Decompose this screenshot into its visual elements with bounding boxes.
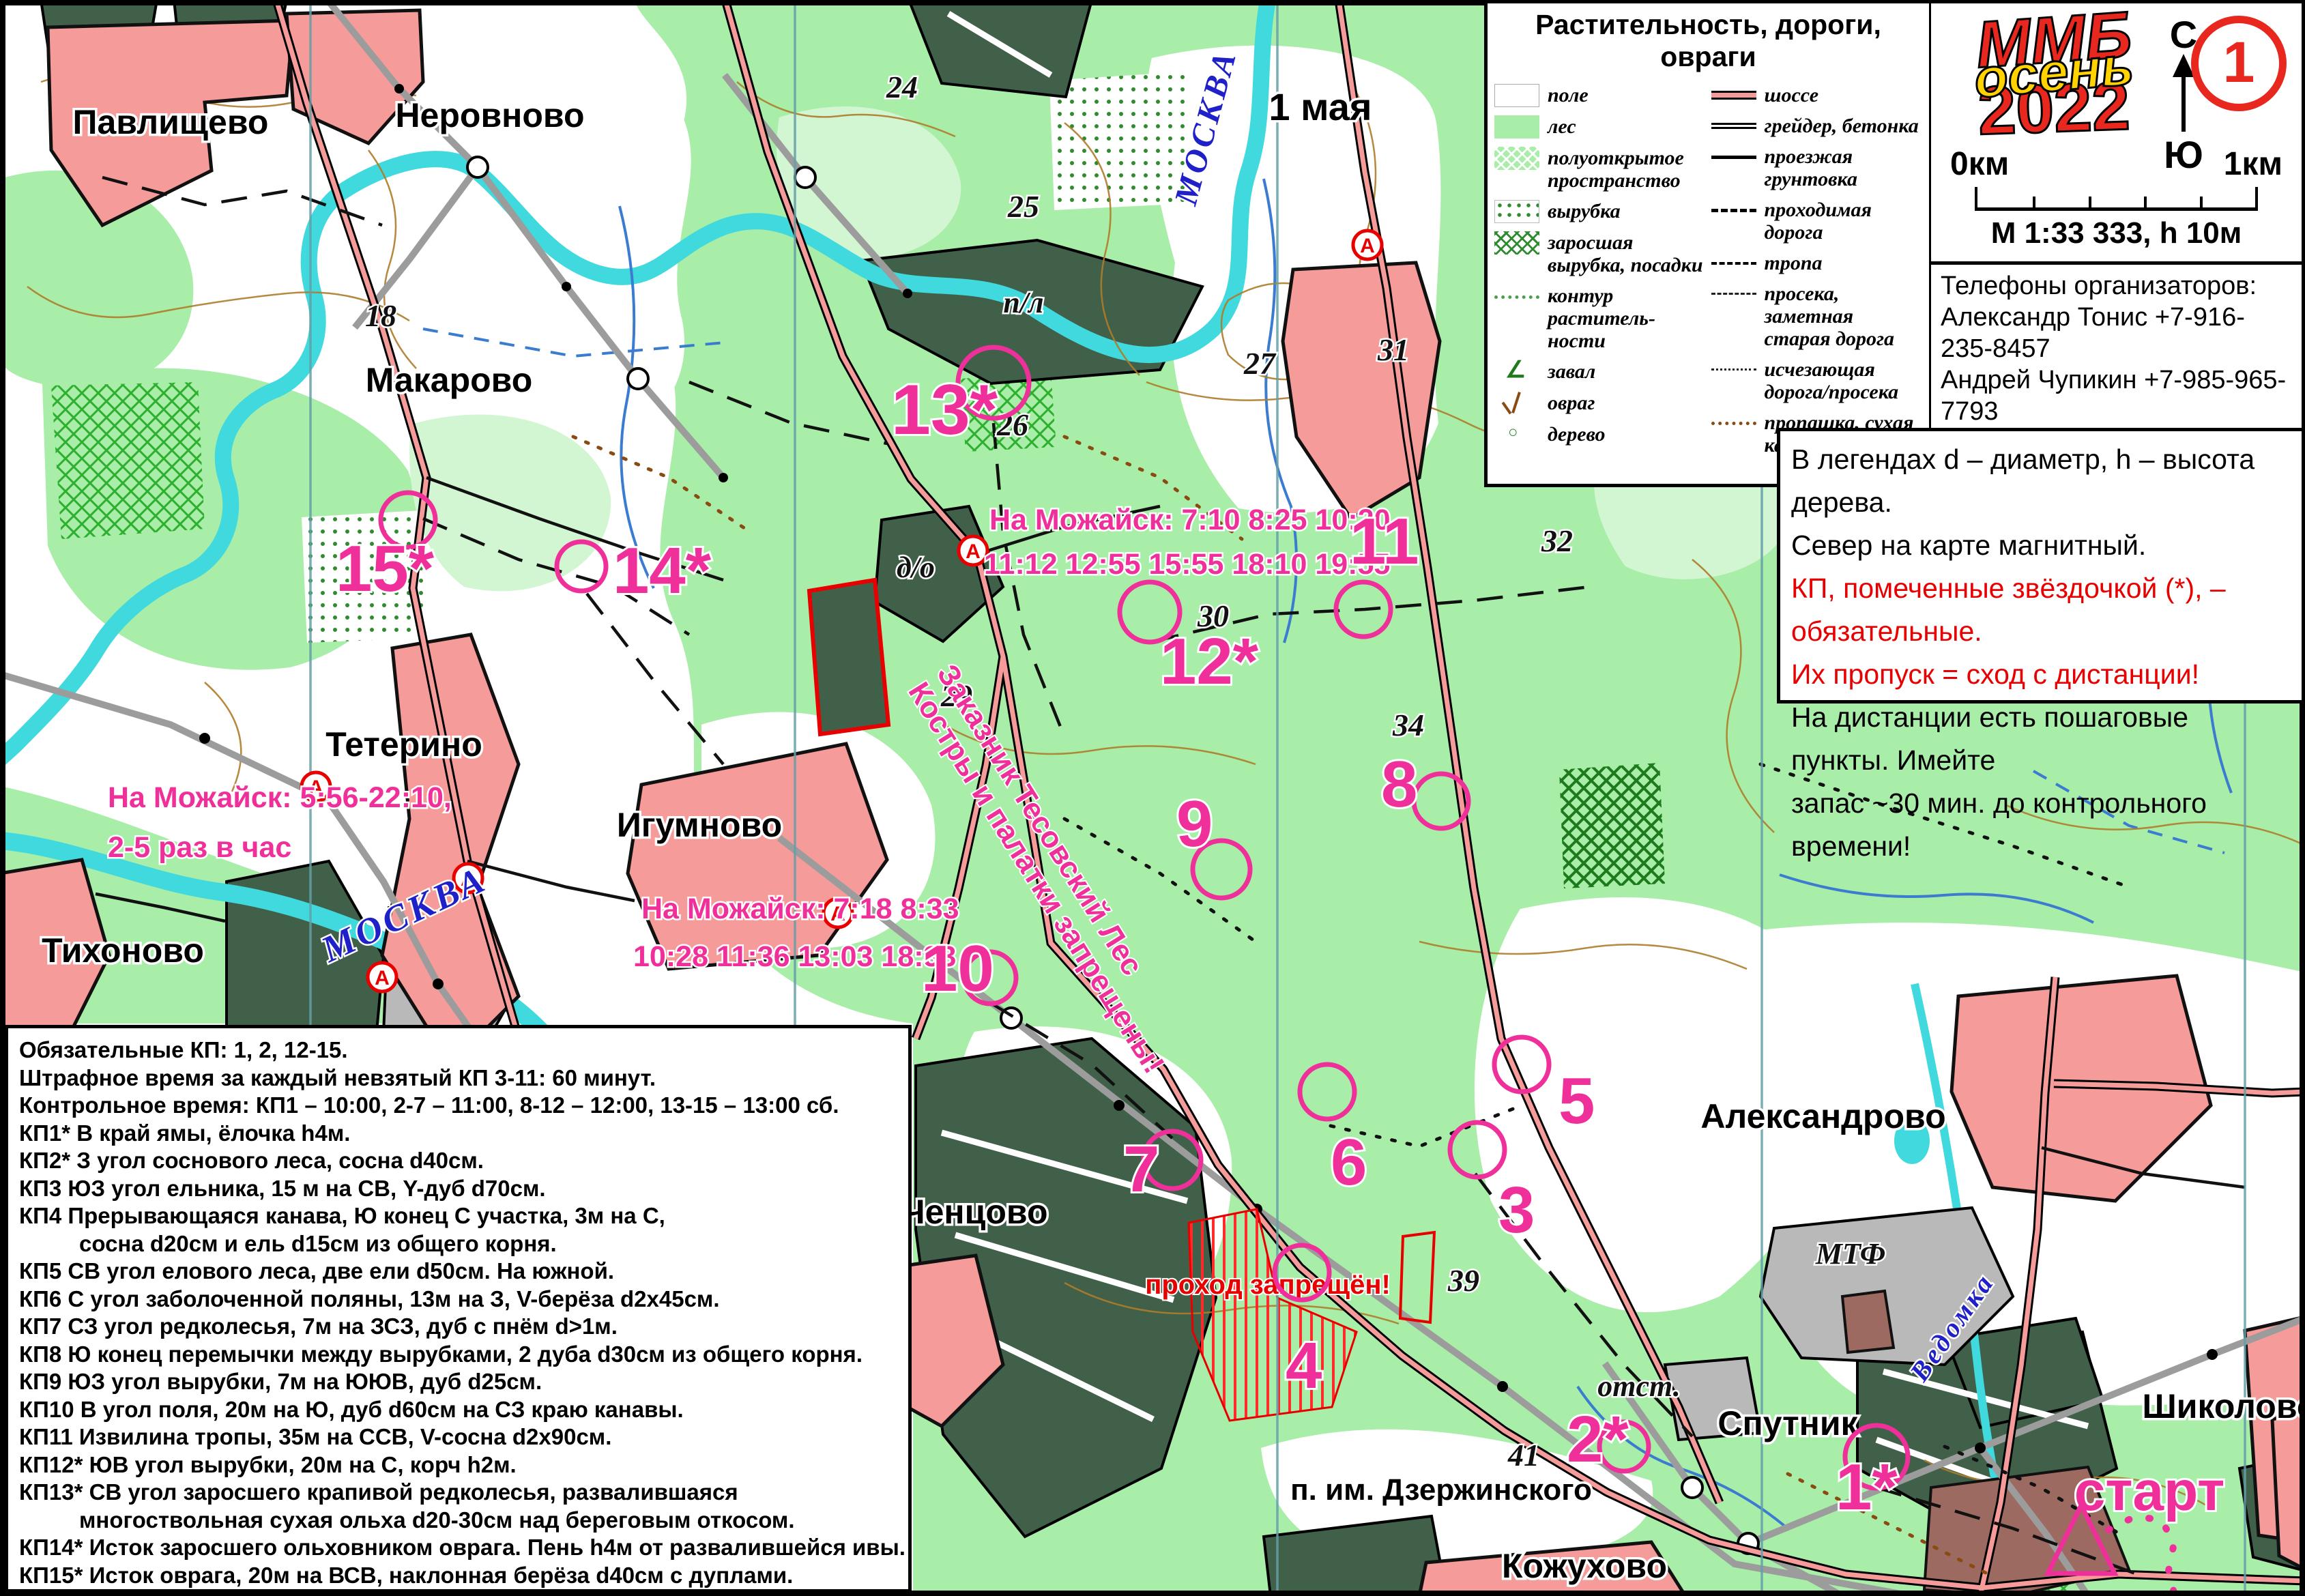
control-description-line: КП1* В край ямы, ёлочка h4м. xyxy=(19,1120,897,1148)
scale-caption: М 1:33 333, h 10м xyxy=(1950,216,2282,250)
legend-item: проезжая грунтовка xyxy=(1711,145,1923,190)
map-label-transit: 10:28 11:36 13:03 18:33 xyxy=(633,940,956,973)
map-label-num: 32 xyxy=(1541,523,1573,558)
legend-title: Растительность, дороги, овраги xyxy=(1494,9,1922,73)
notes-line: Их пропуск = сход с дистанции! xyxy=(1791,653,2291,696)
legend-item-label: контур раститель- ности xyxy=(1548,285,1706,352)
control-description-line: КП15* Исток оврага, 20м на ВСВ, наклонна… xyxy=(19,1562,897,1590)
control-description-line: КП7 СЗ угол редколесья, 7м на ЗСЗ, дуб с… xyxy=(19,1313,897,1341)
map-label-place: Неровново xyxy=(395,96,584,134)
legend-item: вырубка xyxy=(1494,200,1706,223)
legend-item: заросшая вырубка, посадки xyxy=(1494,231,1706,276)
map-label-place: Макарово xyxy=(366,361,533,399)
notes-line: КП, помеченные звёздочкой (*), – обязате… xyxy=(1791,567,2291,653)
event-logo: ММБ осень 2022 xyxy=(1952,10,2156,140)
map-label-transit: На Можайск: 7:18 8:33 xyxy=(641,893,959,925)
map-label-transit: 11:12 12:55 15:55 18:10 19:55 xyxy=(984,548,1390,581)
checkpoint-label: 5 xyxy=(1559,1064,1595,1137)
notes-line: На дистанции есть пошаговые пункты. Имей… xyxy=(1791,696,2291,782)
legend-swatch-icon xyxy=(1494,115,1539,139)
control-description-line: КП4 Прерывающаяся канава, Ю конец С учас… xyxy=(19,1202,897,1230)
map-label-num: 39 xyxy=(1447,1263,1479,1298)
map-label-place: Шиколово xyxy=(2143,1387,2305,1425)
map-label-num: 31 xyxy=(1377,332,1409,367)
checkpoint-label: 7 xyxy=(1123,1133,1159,1206)
legend-item-label: овраг xyxy=(1548,392,1595,414)
legend-item: проходимая дорога xyxy=(1711,199,1923,244)
legend-item: грейдер, бетонка xyxy=(1711,115,1923,137)
legend-swatch-icon xyxy=(1711,262,1756,265)
legend-swatch-icon xyxy=(1711,156,1756,159)
legend-item: поле xyxy=(1494,84,1706,107)
map-label-transit: 2-5 раз в час xyxy=(108,831,291,864)
map-label-place: п. им. Дзержинского xyxy=(1290,1473,1592,1507)
legend-item: контур раститель- ности xyxy=(1494,285,1706,352)
legend-swatch-icon xyxy=(1711,91,1756,100)
legend-swatch-icon xyxy=(1494,392,1539,415)
map-label-transit: На Можайск: 5:56-22:10, xyxy=(108,781,452,814)
notes-line: запас ~30 мин. до контрольного времени! xyxy=(1791,782,2291,868)
map-label-num: 34 xyxy=(1392,708,1424,742)
legend-item-label: исчезающая дорога/просека xyxy=(1765,358,1923,403)
legend-item-label: шоссе xyxy=(1765,84,1819,106)
race-notes-panel: В легендах d – диаметр, h – высота дерев… xyxy=(1777,428,2305,703)
map-label-forbid: проход запрещён! xyxy=(1145,1270,1391,1300)
map-label-num: 41 xyxy=(1507,1438,1539,1472)
checkpoint-label: 3 xyxy=(1498,1174,1535,1247)
control-description-line: КП14* Исток заросшего ольховником оврага… xyxy=(19,1534,897,1562)
phones-line: Андрей Чупикин +7-985-965-7793 xyxy=(1941,364,2292,427)
phones-line: Александр Тонис +7-916-235-8457 xyxy=(1941,302,2292,364)
control-descriptions-panel: Обязательные КП: 1, 2, 12-15.Штрафное вр… xyxy=(5,1025,912,1593)
control-description-line: многоствольная сухая ольха d20-30см над … xyxy=(19,1507,897,1535)
control-description-line: КП8 Ю конец перемычки между вырубками, 2… xyxy=(19,1341,897,1369)
notes-line: Север на карте магнитный. xyxy=(1791,524,2291,567)
control-description-line: КП2* З угол соснового леса, сосна d40см. xyxy=(19,1147,897,1175)
legend-item: полуоткрытое пространство xyxy=(1494,147,1706,192)
notes-line: В легендах d – диаметр, h – высота дерев… xyxy=(1791,438,2291,524)
map-label-transit: На Можайск: 7:10 8:25 10:20 xyxy=(989,504,1391,536)
legend-roads-column: шоссе грейдер, бетонка проезжая грунтовк… xyxy=(1711,80,1923,461)
map-label-place: Тетерино xyxy=(325,725,482,764)
legend-swatch-icon xyxy=(1711,209,1756,212)
bus-stop-letter: А xyxy=(1360,235,1375,257)
legend-swatch-icon xyxy=(1494,295,1539,299)
legend-item: дерево xyxy=(1494,423,1706,446)
control-description-line: сосна d20см и ель d15см из общего корня. xyxy=(19,1230,897,1258)
checkpoint-label: 6 xyxy=(1331,1126,1367,1199)
legend-swatch-icon xyxy=(1711,422,1756,425)
legend-swatch-icon xyxy=(1494,147,1539,170)
map-label-smallit: отст. xyxy=(1597,1369,1681,1403)
control-description-line: КП11 Извилина тропы, 35м на ССВ, V-сосна… xyxy=(19,1423,897,1451)
map-label-smallit: МТФ xyxy=(1815,1237,1885,1271)
map-label-num: 24 xyxy=(886,70,918,104)
legend-item: завал xyxy=(1494,360,1706,383)
checkpoint-label: 4 xyxy=(1286,1329,1322,1402)
map-label-place: Тихоново xyxy=(42,931,204,970)
map-label-num: 27 xyxy=(1243,346,1277,381)
map-label-smallit: п/л xyxy=(1003,286,1043,319)
legend-item-label: заросшая вырубка, посадки xyxy=(1548,231,1706,276)
checkpoint-label: 1* xyxy=(1836,1451,1898,1524)
legend-item-label: тропа xyxy=(1765,252,1823,274)
legend-vegetation-column: поле лес полуоткрытое пространство выруб… xyxy=(1494,80,1706,461)
control-description-line: Контрольное время: КП1 – 10:00, 2-7 – 11… xyxy=(19,1092,897,1120)
map-label-place: Ченцово xyxy=(901,1193,1047,1231)
event-logo-panel: ММБ осень 2022 С Ю 1 0км 1км М 1:33 333,… xyxy=(1931,0,2305,265)
scale-bar-ruler xyxy=(1975,187,2258,211)
legend-item-label: поле xyxy=(1548,84,1589,106)
map-label-place: Павлищево xyxy=(73,103,269,141)
checkpoint-label: 9 xyxy=(1176,787,1213,860)
checkpoint-label: 2* xyxy=(1567,1403,1629,1476)
legend-swatch-icon xyxy=(1711,368,1756,371)
bus-stop-letter: А xyxy=(966,540,981,563)
checkpoint-label: 14* xyxy=(613,534,712,607)
legend-swatch-icon xyxy=(1494,360,1539,383)
map-label-num: 25 xyxy=(1007,189,1039,224)
legend-item: просека, заметная старая дорога xyxy=(1711,282,1923,350)
legend-item-label: полуоткрытое пространство xyxy=(1548,147,1706,192)
control-description-line: КП12* ЮВ угол вырубки, 20м на С, корч h2… xyxy=(19,1451,897,1479)
phones-line: Телефоны организаторов: xyxy=(1941,270,2292,302)
control-description-line: КП3 ЮЗ угол ельника, 15 м на СВ, Y-дуб d… xyxy=(19,1175,897,1203)
map-label-place: Кожухово xyxy=(1502,1547,1667,1585)
checkpoint-label: 15* xyxy=(336,532,435,605)
legend-swatch-icon xyxy=(1711,123,1756,129)
control-description-line: КП6 С угол заболоченной поляны, 13м на З… xyxy=(19,1286,897,1314)
legend-item-label: грейдер, бетонка xyxy=(1765,115,1919,137)
legend-item: овраг xyxy=(1494,392,1706,415)
scale-bar: 0км 1км М 1:33 333, h 10м xyxy=(1950,145,2282,248)
legend-item-label: завал xyxy=(1548,360,1595,383)
legend-item-label: проезжая грунтовка xyxy=(1765,145,1923,190)
control-description-line: КП13* СВ угол заросшего крапивой редколе… xyxy=(19,1479,897,1507)
control-description-line: Обязательные КП: 1, 2, 12-15. xyxy=(19,1036,897,1064)
control-description-line: КП10 В угол поля, 20м на Ю, дуб d60см на… xyxy=(19,1396,897,1424)
legend-item-label: лес xyxy=(1548,115,1576,138)
legend-item-label: просека, заметная старая дорога xyxy=(1765,282,1923,350)
scale-one-km-label: 1км xyxy=(2224,145,2282,183)
checkpoint-label: 10 xyxy=(921,932,994,1005)
organizer-phones-panel: Телефоны организаторов:Александр Тонис +… xyxy=(1931,261,2305,431)
map-label-place: Александрово xyxy=(1700,1097,1945,1135)
map-label-start: старт xyxy=(2074,1460,2225,1522)
checkpoint-label: 12* xyxy=(1160,625,1259,698)
map-label-num: 18 xyxy=(365,298,396,333)
bus-stop-letter: А xyxy=(375,967,390,989)
scale-zero-label: 0км xyxy=(1950,145,2009,183)
map-label-smallit: д/о xyxy=(897,551,935,584)
legend-swatch-icon xyxy=(1494,84,1539,107)
legend-item: лес xyxy=(1494,115,1706,139)
control-description-line: КП5 СВ угол елового леса, две ели d50см.… xyxy=(19,1258,897,1286)
checkpoint-label: 8 xyxy=(1381,748,1417,821)
legend-item-label: вырубка xyxy=(1548,200,1621,222)
legend-item: тропа xyxy=(1711,252,1923,274)
legend-panel: Растительность, дороги, овраги поле лес … xyxy=(1484,0,1932,487)
map-label-place: Спутник xyxy=(1717,1404,1858,1442)
map-number-badge: 1 xyxy=(2191,16,2287,111)
control-description-line: Штрафное время за каждый невзятый КП 3-1… xyxy=(19,1064,897,1092)
legend-item: шоссе xyxy=(1711,84,1923,106)
checkpoint-label: 11 xyxy=(1350,505,1419,578)
legend-swatch-icon xyxy=(1711,293,1756,295)
legend-item-label: дерево xyxy=(1548,423,1606,446)
legend-item: исчезающая дорога/просека xyxy=(1711,358,1923,403)
map-label-place: 1 мая xyxy=(1269,85,1372,128)
legend-item-label: проходимая дорога xyxy=(1765,199,1923,244)
map-label-place: Игумново xyxy=(617,806,782,844)
legend-swatch-icon xyxy=(1494,200,1539,223)
legend-swatch-icon xyxy=(1494,231,1539,255)
legend-swatch-icon xyxy=(1494,423,1539,446)
orienteering-map-page: { "panels": { "legend": { "title": "Раст… xyxy=(0,0,2305,1596)
checkpoint-label: 13* xyxy=(891,371,998,450)
control-description-line: КП9 ЮЗ угол вырубки, 7м на ЮЮВ, дуб d25с… xyxy=(19,1368,897,1396)
